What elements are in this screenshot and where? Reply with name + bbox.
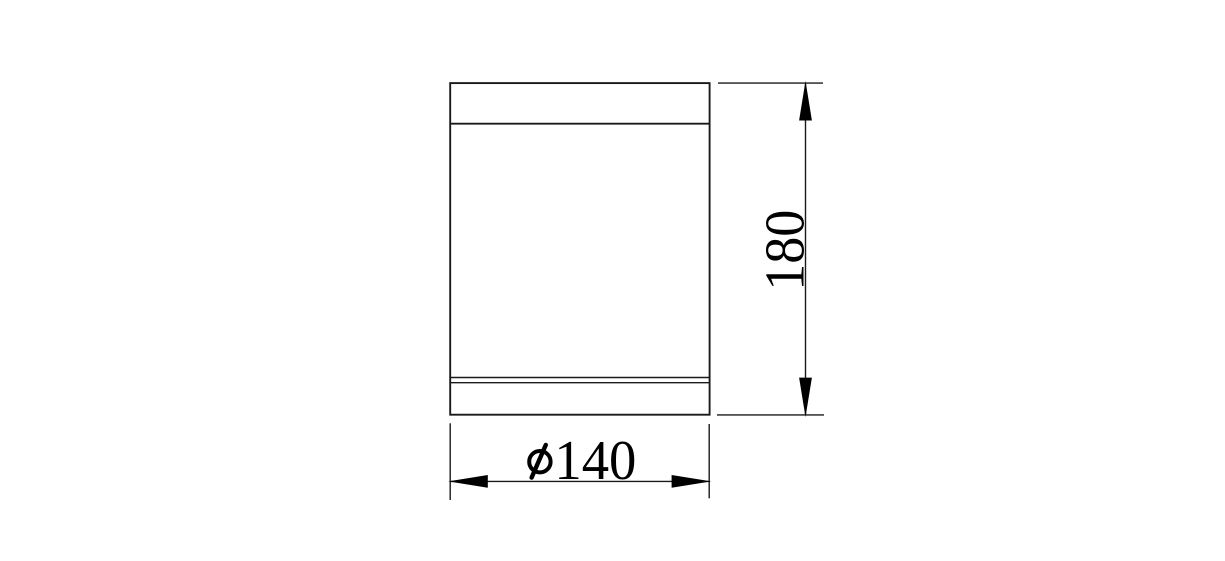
svg-text:180: 180	[754, 210, 816, 291]
svg-text:140: 140	[554, 430, 636, 492]
